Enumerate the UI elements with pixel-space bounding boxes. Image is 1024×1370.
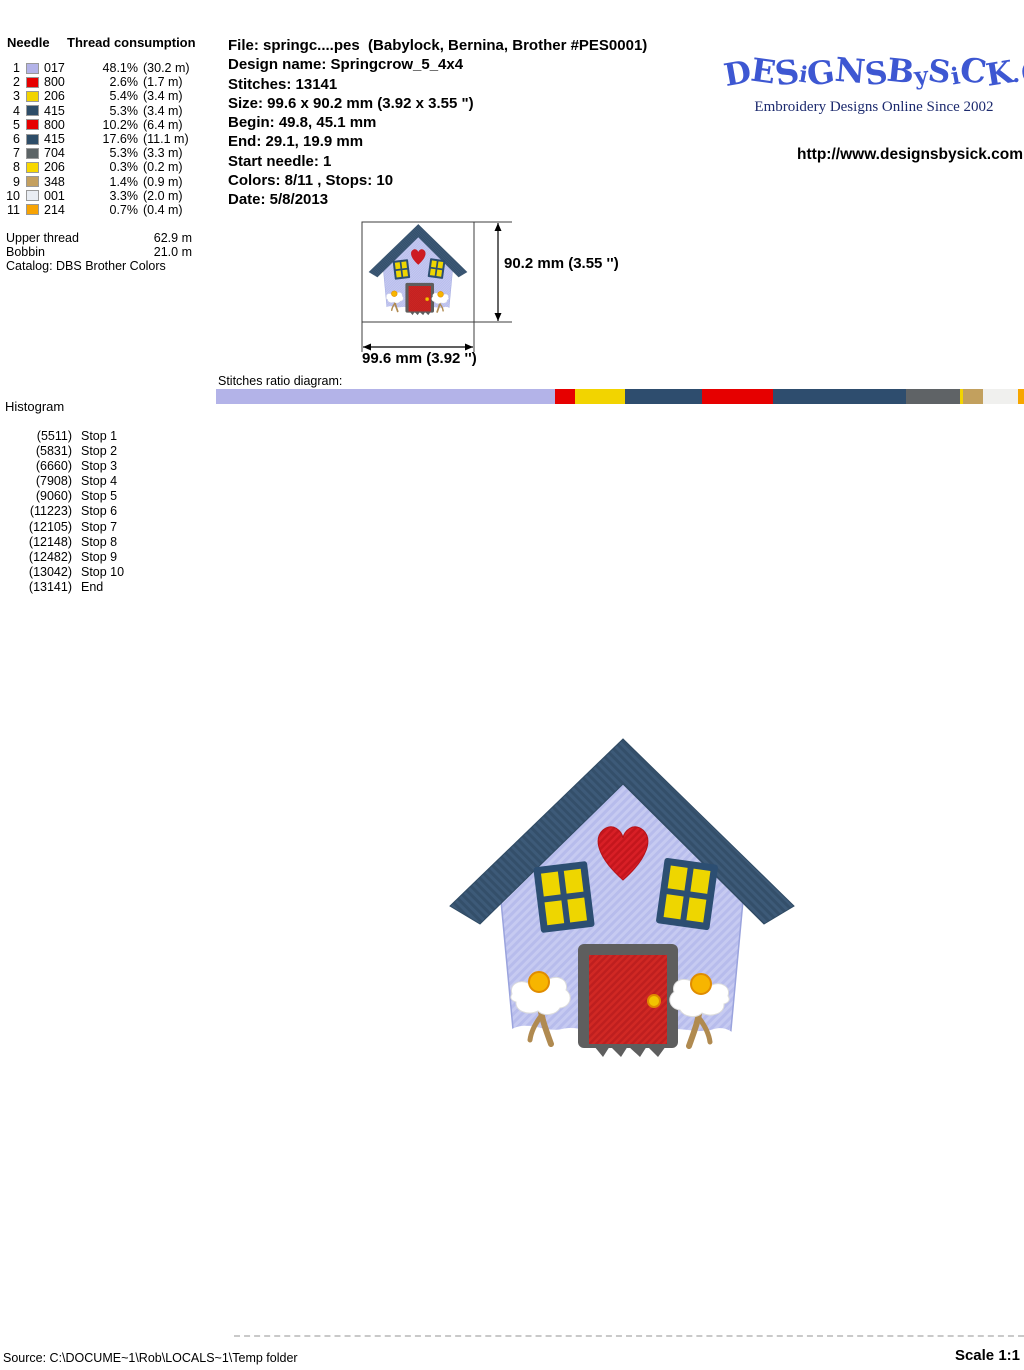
ratio-segment: [555, 389, 575, 404]
thread-percent: 3.3%: [88, 189, 138, 203]
thread-percent: 5.3%: [88, 104, 138, 118]
needle-number: 8: [0, 160, 20, 174]
thread-percent: 5.4%: [88, 89, 138, 103]
thread-length: (30.2 m): [143, 61, 190, 75]
ratio-segment: [625, 389, 702, 404]
cut-line: [234, 1335, 1024, 1337]
thread-consumption-header: Thread consumption: [67, 35, 196, 50]
stop-label: Stop 8: [81, 535, 117, 549]
stop-label: Stop 2: [81, 444, 117, 458]
file-info-line: Size: 99.6 x 90.2 mm (3.92 x 3.55 "): [228, 94, 647, 113]
ratio-segment: [1018, 389, 1024, 404]
histogram-entry: (13141)End: [20, 580, 124, 595]
thread-color-swatch: [26, 77, 39, 88]
ratio-segment: [216, 389, 555, 404]
thread-percent: 17.6%: [88, 132, 138, 146]
thread-length: (6.4 m): [143, 118, 183, 132]
thread-color-swatch: [26, 204, 39, 215]
histogram-title: Histogram: [5, 399, 64, 414]
thread-code: 704: [44, 146, 88, 160]
width-dimension-label: 99.6 mm (3.92 ''): [362, 350, 477, 367]
stop-label: Stop 9: [81, 550, 117, 564]
thread-length: (1.7 m): [143, 75, 183, 89]
thread-code: 415: [44, 104, 88, 118]
stitch-count: (5831): [20, 444, 72, 459]
stitch-count: (7908): [20, 474, 72, 489]
logo-tagline: Embroidery Designs Online Since 2002: [724, 99, 1024, 116]
thread-length: (3.4 m): [143, 104, 183, 118]
ratio-segment: [702, 389, 773, 404]
ratio-segment: [983, 389, 1017, 404]
thread-totals: Upper thread 62.9 m Bobbin 21.0 m Catalo…: [6, 231, 192, 274]
stitch-count: (9060): [20, 489, 72, 504]
histogram-entry: (5511)Stop 1: [20, 429, 124, 444]
thread-length: (0.4 m): [143, 203, 183, 217]
website-url: http://www.designsbysick.com: [797, 146, 1023, 164]
thread-color-swatch: [26, 105, 39, 116]
thread-row: 580010.2%(6.4 m): [0, 118, 190, 132]
histogram-entry: (5831)Stop 2: [20, 444, 124, 459]
file-info-line: Colors: 8/11 , Stops: 10: [228, 171, 647, 190]
embroidery-design-house: [448, 738, 796, 1074]
histogram-entry: (12148)Stop 8: [20, 535, 124, 550]
thread-row: 82060.3%(0.2 m): [0, 160, 190, 174]
thread-color-swatch: [26, 63, 39, 74]
thread-percent: 0.3%: [88, 160, 138, 174]
stop-label: Stop 7: [81, 520, 117, 534]
thread-color-swatch: [26, 91, 39, 102]
histogram-entries: (5511)Stop 1(5831)Stop 2(6660)Stop 3(790…: [20, 429, 124, 595]
thread-code: 001: [44, 189, 88, 203]
stitch-count: (5511): [20, 429, 72, 444]
stop-label: Stop 10: [81, 565, 124, 579]
stitch-count: (13042): [20, 565, 72, 580]
thread-code: 415: [44, 132, 88, 146]
thread-row: 641517.6%(11.1 m): [0, 132, 190, 146]
histogram-entry: (12105)Stop 7: [20, 520, 124, 535]
stitch-count: (12482): [20, 550, 72, 565]
histogram-entry: (7908)Stop 4: [20, 474, 124, 489]
histogram-entry: (6660)Stop 3: [20, 459, 124, 474]
needle-number: 9: [0, 175, 20, 189]
branding-block: DESiGNSBySiCK.CoM Embroidery Designs Onl…: [724, 52, 1024, 116]
needle-number: 6: [0, 132, 20, 146]
thread-code: 800: [44, 75, 88, 89]
thread-row: 101748.1%(30.2 m): [0, 61, 190, 75]
needle-column-header: Needle: [7, 35, 50, 50]
thread-color-swatch: [26, 176, 39, 187]
thread-percent: 0.7%: [88, 203, 138, 217]
file-info-line: Stitches: 13141: [228, 75, 647, 94]
thread-code: 206: [44, 89, 88, 103]
ratio-segment: [575, 389, 626, 404]
logo-letter: D: [721, 52, 754, 96]
needle-number: 1: [0, 61, 20, 75]
source-path: Source: C:\DOCUME~1\Rob\LOCALS~1\Temp fo…: [3, 1351, 298, 1365]
file-info-line: Design name: Springcrow_5_4x4: [228, 55, 647, 74]
thread-code: 206: [44, 160, 88, 174]
stitch-count: (12148): [20, 535, 72, 550]
ratio-segment: [906, 389, 960, 404]
thread-code: 348: [44, 175, 88, 189]
thread-percent: 48.1%: [88, 61, 138, 75]
needle-number: 2: [0, 75, 20, 89]
stop-label: Stop 4: [81, 474, 117, 488]
thread-row: 100013.3%(2.0 m): [0, 189, 190, 203]
thread-percent: 10.2%: [88, 118, 138, 132]
file-info-line: Start needle: 1: [228, 152, 647, 171]
needle-number: 7: [0, 146, 20, 160]
thread-length: (3.3 m): [143, 146, 183, 160]
upper-thread-label: Upper thread: [6, 231, 79, 245]
thread-percent: 5.3%: [88, 146, 138, 160]
bobbin-row: Bobbin 21.0 m: [6, 245, 192, 259]
file-info-line: End: 29.1, 19.9 mm: [228, 132, 647, 151]
thread-row: 28002.6%(1.7 m): [0, 75, 190, 89]
scale-label: Scale 1:1: [955, 1347, 1020, 1364]
stitch-count: (11223): [20, 504, 72, 519]
needle-number: 4: [0, 104, 20, 118]
ratio-segment: [963, 389, 984, 404]
thread-percent: 1.4%: [88, 175, 138, 189]
thread-length: (11.1 m): [143, 132, 189, 146]
ratio-segment: [773, 389, 906, 404]
thread-color-swatch: [26, 162, 39, 173]
stop-label: Stop 3: [81, 459, 117, 473]
thread-color-swatch: [26, 119, 39, 130]
thread-length: (0.9 m): [143, 175, 183, 189]
thread-row: 112140.7%(0.4 m): [0, 203, 190, 217]
designsbysick-logo: DESiGNSBySiCK.CoM: [724, 52, 1024, 99]
upper-thread-row: Upper thread 62.9 m: [6, 231, 192, 245]
histogram-entry: (11223)Stop 6: [20, 504, 124, 519]
stop-label: End: [81, 580, 103, 594]
histogram-entry: (13042)Stop 10: [20, 565, 124, 580]
print-sheet: Needle Thread consumption 101748.1%(30.2…: [0, 0, 1024, 1370]
thread-code: 800: [44, 118, 88, 132]
thread-length: (0.2 m): [143, 160, 183, 174]
needle-number: 11: [0, 203, 20, 217]
stitch-count: (6660): [20, 459, 72, 474]
stitches-ratio-bar: [216, 389, 1024, 404]
thread-code: 017: [44, 61, 88, 75]
logo-letter: N: [833, 50, 867, 92]
height-dimension-label: 90.2 mm (3.55 ''): [504, 255, 619, 272]
file-info-line: Begin: 49.8, 45.1 mm: [228, 113, 647, 132]
file-info-line: File: springc....pes (Babylock, Bernina,…: [228, 36, 647, 55]
thread-table-rows: 101748.1%(30.2 m)28002.6%(1.7 m)32065.4%…: [0, 61, 190, 217]
thread-row: 93481.4%(0.9 m): [0, 175, 190, 189]
upper-thread-value: 62.9 m: [154, 231, 192, 245]
bobbin-label: Bobbin: [6, 245, 45, 259]
thread-code: 214: [44, 203, 88, 217]
histogram-entry: (12482)Stop 9: [20, 550, 124, 565]
stitch-count: (13141): [20, 580, 72, 595]
thread-row: 77045.3%(3.3 m): [0, 146, 190, 160]
stop-label: Stop 6: [81, 504, 117, 518]
ratio-diagram-label: Stitches ratio diagram:: [218, 374, 342, 388]
thread-percent: 2.6%: [88, 75, 138, 89]
histogram-entry: (9060)Stop 5: [20, 489, 124, 504]
thread-length: (3.4 m): [143, 89, 183, 103]
design-thumbnail: [364, 223, 472, 321]
thread-color-swatch: [26, 148, 39, 159]
needle-number: 5: [0, 118, 20, 132]
thread-length: (2.0 m): [143, 189, 183, 203]
thread-row: 44155.3%(3.4 m): [0, 104, 190, 118]
stop-label: Stop 5: [81, 489, 117, 503]
needle-number: 3: [0, 89, 20, 103]
file-info-block: File: springc....pes (Babylock, Bernina,…: [228, 36, 647, 210]
needle-number: 10: [0, 189, 20, 203]
thread-row: 32065.4%(3.4 m): [0, 89, 190, 103]
bobbin-value: 21.0 m: [154, 245, 192, 259]
thread-color-swatch: [26, 190, 39, 201]
thread-color-swatch: [26, 134, 39, 145]
catalog-line: Catalog: DBS Brother Colors: [6, 259, 192, 273]
stop-label: Stop 1: [81, 429, 117, 443]
file-info-line: Date: 5/8/2013: [228, 190, 647, 209]
stitch-count: (12105): [20, 520, 72, 535]
